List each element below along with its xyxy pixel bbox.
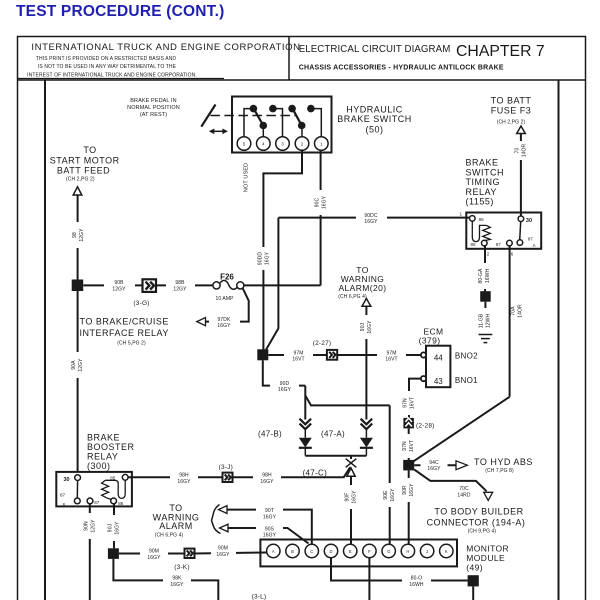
svg-text:98K: 98K bbox=[172, 576, 182, 582]
svg-text:16GY: 16GY bbox=[147, 555, 161, 561]
svg-text:90DD: 90DD bbox=[257, 252, 263, 265]
svg-text:TO BRAKE/CRUISE: TO BRAKE/CRUISE bbox=[80, 317, 169, 327]
svg-text:16VT: 16VT bbox=[409, 397, 415, 409]
svg-text:INTERNATIONAL TRUCK AND ENGINE: INTERNATIONAL TRUCK AND ENGINE CORPORATI… bbox=[31, 42, 300, 53]
svg-text:(49): (49) bbox=[466, 563, 483, 573]
svg-text:80-O: 80-O bbox=[411, 576, 423, 582]
svg-text:90M: 90M bbox=[218, 546, 228, 552]
svg-text:16VT: 16VT bbox=[409, 440, 415, 452]
svg-text:90M: 90M bbox=[149, 549, 159, 555]
svg-text:(CH 5,PG 2): (CH 5,PG 2) bbox=[117, 341, 146, 347]
svg-text:16GY: 16GY bbox=[177, 479, 191, 485]
svg-text:14OR: 14OR bbox=[518, 304, 524, 318]
svg-text:ELECTRICAL CIRCUIT DIAGRAM: ELECTRICAL CIRCUIT DIAGRAM bbox=[299, 44, 451, 55]
svg-text:90J: 90J bbox=[360, 322, 366, 331]
svg-text:INTEREST OF INTERNATIONAL TRUC: INTEREST OF INTERNATIONAL TRUCK AND ENGI… bbox=[27, 73, 197, 79]
svg-text:16GY: 16GY bbox=[216, 552, 230, 558]
svg-text:11-GB: 11-GB bbox=[478, 313, 484, 328]
svg-text:12GY: 12GY bbox=[78, 358, 84, 372]
svg-text:INTERFACE RELAY: INTERFACE RELAY bbox=[80, 328, 169, 338]
svg-text:16WH: 16WH bbox=[485, 269, 491, 284]
svg-text:90DC: 90DC bbox=[364, 213, 377, 219]
svg-text:90D: 90D bbox=[280, 381, 290, 387]
svg-text:H: H bbox=[406, 549, 409, 554]
svg-text:(CH 6,PG 4): (CH 6,PG 4) bbox=[155, 533, 184, 539]
svg-text:16GY: 16GY bbox=[115, 521, 121, 535]
svg-text:A: A bbox=[533, 243, 536, 248]
svg-text:16GY: 16GY bbox=[427, 466, 441, 472]
svg-text:(1155): (1155) bbox=[466, 197, 494, 207]
svg-text:16VT: 16VT bbox=[292, 357, 304, 363]
svg-text:90A: 90A bbox=[71, 360, 77, 370]
svg-text:16WH: 16WH bbox=[409, 582, 424, 588]
svg-text:12GY: 12GY bbox=[112, 286, 126, 292]
svg-text:FUSE F3: FUSE F3 bbox=[491, 106, 532, 116]
svg-text:THIS PRINT IS PROVIDED ON A RE: THIS PRINT IS PROVIDED ON A RESTRICTED B… bbox=[36, 56, 177, 62]
svg-text:30: 30 bbox=[526, 218, 532, 224]
svg-text:98B: 98B bbox=[175, 280, 185, 286]
svg-text:16GY: 16GY bbox=[263, 533, 277, 539]
svg-text:TO BODY BUILDER: TO BODY BUILDER bbox=[434, 507, 523, 517]
svg-text:16GY: 16GY bbox=[217, 323, 231, 329]
svg-text:(2-28): (2-28) bbox=[416, 423, 435, 430]
svg-text:TEST PROCEDURE (CONT.): TEST PROCEDURE (CONT.) bbox=[16, 3, 225, 20]
svg-text:(2-27): (2-27) bbox=[313, 340, 332, 347]
svg-text:(300): (300) bbox=[87, 461, 111, 471]
svg-text:12GY: 12GY bbox=[90, 519, 96, 533]
svg-text:90R: 90R bbox=[402, 485, 408, 495]
svg-text:C: C bbox=[310, 549, 313, 554]
svg-text:44: 44 bbox=[434, 354, 443, 363]
svg-text:CHASSIS ACCESSORIES - HYDRAULI: CHASSIS ACCESSORIES - HYDRAULIC ANTILOCK… bbox=[299, 65, 504, 72]
svg-text:(CH 6,PG 4): (CH 6,PG 4) bbox=[338, 294, 367, 300]
svg-text:BRAKE PEDAL IN: BRAKE PEDAL IN bbox=[130, 98, 176, 104]
svg-text:K: K bbox=[445, 549, 448, 554]
svg-text:16GY: 16GY bbox=[170, 582, 184, 588]
svg-text:BNO2: BNO2 bbox=[455, 351, 478, 360]
svg-text:TO BATT: TO BATT bbox=[491, 96, 532, 106]
svg-text:MONITOR: MONITOR bbox=[466, 544, 509, 554]
svg-text:98: 98 bbox=[72, 232, 78, 238]
svg-text:BOOSTER: BOOSTER bbox=[87, 442, 135, 452]
svg-text:16VT: 16VT bbox=[385, 357, 397, 363]
svg-text:J: J bbox=[426, 549, 428, 554]
svg-text:16GY: 16GY bbox=[409, 483, 415, 497]
svg-text:16GY: 16GY bbox=[278, 387, 292, 393]
svg-text:87: 87 bbox=[60, 492, 66, 497]
svg-text:12WH: 12WH bbox=[485, 314, 491, 329]
svg-text:ALARM(20): ALARM(20) bbox=[338, 283, 386, 293]
svg-text:70: 70 bbox=[515, 148, 521, 154]
svg-text:70A: 70A bbox=[511, 306, 517, 316]
svg-text:(3-K): (3-K) bbox=[174, 564, 189, 571]
svg-text:87: 87 bbox=[528, 236, 534, 241]
svg-text:43: 43 bbox=[434, 377, 443, 386]
svg-text:85: 85 bbox=[110, 476, 116, 481]
svg-text:(AT REST): (AT REST) bbox=[140, 112, 167, 118]
svg-text:97N: 97N bbox=[402, 398, 408, 408]
svg-text:MODULE: MODULE bbox=[466, 553, 505, 563]
svg-text:87: 87 bbox=[94, 500, 100, 505]
svg-text:BRAKE: BRAKE bbox=[87, 433, 120, 443]
svg-text:16GY: 16GY bbox=[367, 320, 373, 334]
svg-text:(CH 2,PG 2): (CH 2,PG 2) bbox=[66, 177, 95, 183]
svg-text:B: B bbox=[291, 549, 294, 554]
svg-text:85: 85 bbox=[471, 242, 477, 247]
svg-text:TO: TO bbox=[169, 503, 182, 513]
svg-text:IS NOT TO BE USED IN ANY WAY D: IS NOT TO BE USED IN ANY WAY DETRIMENTAL… bbox=[38, 64, 177, 70]
svg-text:(3-L): (3-L) bbox=[252, 594, 267, 600]
svg-text:RELAY: RELAY bbox=[87, 452, 118, 462]
svg-text:HYDRAULIC: HYDRAULIC bbox=[346, 105, 403, 115]
svg-text:TIMING: TIMING bbox=[466, 177, 501, 187]
svg-text:(47-B): (47-B) bbox=[258, 430, 282, 439]
svg-text:F26: F26 bbox=[220, 273, 234, 282]
svg-text:16GY: 16GY bbox=[390, 488, 396, 502]
svg-text:90S: 90S bbox=[265, 526, 275, 532]
svg-text:TO HYD ABS: TO HYD ABS bbox=[474, 457, 533, 467]
svg-text:90B: 90B bbox=[114, 280, 124, 286]
svg-text:ALARM: ALARM bbox=[159, 521, 193, 531]
svg-text:CHAPTER 7: CHAPTER 7 bbox=[456, 43, 545, 60]
svg-text:90J: 90J bbox=[108, 523, 114, 532]
svg-text:90F: 90F bbox=[344, 493, 350, 502]
svg-text:16GY: 16GY bbox=[263, 514, 277, 520]
svg-text:16GY: 16GY bbox=[351, 490, 357, 504]
svg-text:97DK: 97DK bbox=[218, 317, 231, 323]
svg-text:90N: 90N bbox=[83, 521, 89, 531]
svg-text:14OR: 14OR bbox=[522, 143, 528, 157]
svg-text:BNO1: BNO1 bbox=[455, 376, 478, 385]
svg-text:(379): (379) bbox=[419, 336, 441, 346]
svg-text:16GY: 16GY bbox=[322, 195, 328, 209]
svg-text:97N: 97N bbox=[402, 441, 408, 451]
svg-text:BATT FEED: BATT FEED bbox=[57, 166, 110, 176]
svg-text:14RD: 14RD bbox=[457, 492, 470, 498]
svg-text:10 AMP: 10 AMP bbox=[215, 296, 234, 302]
svg-text:(47-C): (47-C) bbox=[303, 469, 328, 478]
svg-text:86: 86 bbox=[118, 501, 124, 506]
svg-text:(47-A): (47-A) bbox=[321, 430, 345, 439]
svg-text:A: A bbox=[272, 549, 275, 554]
svg-text:(CH 2,PG 2): (CH 2,PG 2) bbox=[497, 120, 526, 126]
svg-text:G: G bbox=[387, 549, 390, 554]
svg-text:(3-J): (3-J) bbox=[219, 464, 233, 471]
svg-text:E: E bbox=[349, 549, 352, 554]
svg-text:30: 30 bbox=[64, 477, 70, 483]
svg-text:70C: 70C bbox=[459, 486, 469, 492]
svg-text:12GY: 12GY bbox=[173, 286, 187, 292]
svg-text:SWITCH: SWITCH bbox=[466, 167, 505, 177]
svg-text:12GY: 12GY bbox=[79, 228, 85, 242]
svg-text:16GY: 16GY bbox=[264, 251, 270, 265]
svg-text:CONNECTOR (194-A): CONNECTOR (194-A) bbox=[427, 518, 526, 528]
svg-text:86: 86 bbox=[479, 217, 485, 222]
svg-text:BRAKE SWITCH: BRAKE SWITCH bbox=[337, 114, 412, 124]
svg-text:87: 87 bbox=[496, 242, 502, 247]
svg-text:NOT USED: NOT USED bbox=[244, 163, 250, 192]
svg-text:(CH 9,PG 4): (CH 9,PG 4) bbox=[468, 529, 497, 535]
svg-text:TO: TO bbox=[83, 145, 96, 155]
svg-text:94C: 94C bbox=[429, 460, 439, 466]
svg-text:(CH 7,PG 8): (CH 7,PG 8) bbox=[485, 468, 514, 474]
svg-text:NORMAL POSITION: NORMAL POSITION bbox=[127, 105, 180, 111]
svg-text:RELAY: RELAY bbox=[466, 187, 497, 197]
svg-text:D: D bbox=[329, 549, 332, 554]
svg-text:(50): (50) bbox=[365, 124, 383, 134]
svg-text:(3-G): (3-G) bbox=[133, 300, 149, 307]
svg-text:98H: 98H bbox=[262, 473, 272, 479]
svg-text:98H: 98H bbox=[179, 473, 189, 479]
svg-text:90C: 90C bbox=[315, 197, 321, 207]
svg-text:F: F bbox=[368, 549, 371, 554]
svg-text:97M: 97M bbox=[386, 350, 396, 356]
svg-text:97M: 97M bbox=[293, 350, 303, 356]
svg-text:90T: 90T bbox=[265, 508, 274, 514]
svg-text:90E: 90E bbox=[383, 490, 389, 500]
svg-text:BRAKE: BRAKE bbox=[466, 158, 499, 168]
svg-text:16GY: 16GY bbox=[364, 219, 378, 225]
svg-text:80-GA: 80-GA bbox=[478, 268, 484, 284]
svg-text:START MOTOR: START MOTOR bbox=[50, 155, 120, 165]
svg-text:16GY: 16GY bbox=[260, 479, 274, 485]
